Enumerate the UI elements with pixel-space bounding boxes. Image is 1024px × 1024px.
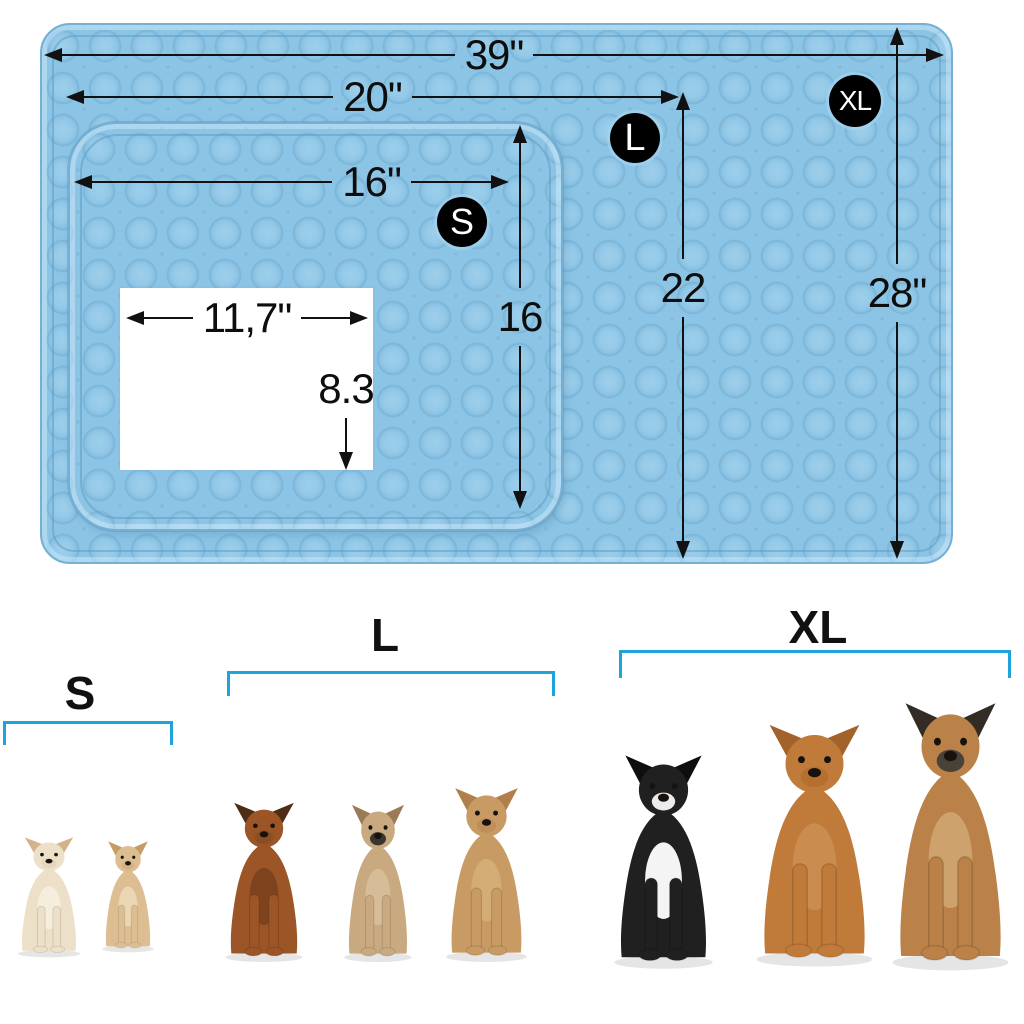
pet-mat-size-guide: 39" 20" 16" 11,7" 16 22 28" 8.3 S L X [0,0,1024,1024]
dimension-label: 16 [498,288,543,346]
dimension-l-height: 22 [666,92,700,559]
dog-labrador [742,722,887,968]
dimension-l-width: 20" [66,80,679,114]
group-label-s: S [65,670,96,716]
dimension-label: 8.3 [318,360,373,418]
bracket-l [227,671,555,696]
dog-border-collie [602,753,725,970]
arrow-right-icon [350,311,368,325]
dog-french-bulldog [336,803,420,963]
dimension-label: 16" [332,161,411,203]
size-badge-s: S [437,197,487,247]
bracket-xl [619,650,1011,678]
group-label-xl: XL [789,604,848,650]
arrow-down-icon [513,491,527,509]
dimension-insert-width: 11,7" [126,301,368,335]
dimension-label: 20" [333,76,412,118]
arrow-left-icon [74,175,92,189]
arrow-down-icon [676,541,690,559]
dimension-xl-width: 39" [44,38,944,72]
dimension-s-width: 16" [74,165,509,199]
arrow-down-icon [890,541,904,559]
dimension-insert-height: 8.3 [314,360,378,470]
arrow-left-icon [126,311,144,325]
dimension-label: 28" [868,264,927,322]
arrow-left-icon [66,90,84,104]
dog-dachshund [216,801,312,963]
arrow-up-icon [513,125,527,143]
dimension-label: 22 [661,259,706,317]
dog-german-shepherd [878,700,1023,972]
arrow-down-icon [339,452,353,470]
dimension-s-height: 16 [503,125,537,509]
dimension-label: 39" [455,34,534,76]
group-label-l: L [371,612,399,658]
arrow-right-icon [926,48,944,62]
dog-chihuahua-tan [96,840,160,953]
arrow-up-icon [676,92,690,110]
arrow-up-icon [890,27,904,45]
size-badge-l: L [610,113,660,163]
size-badge-xl: XL [829,75,881,127]
bracket-s [3,721,173,745]
arrow-left-icon [44,48,62,62]
dog-cockapoo [436,786,537,963]
dog-chihuahua-cream [10,836,88,958]
dimension-xl-height: 28" [880,27,914,559]
dimension-label: 11,7" [193,297,302,339]
